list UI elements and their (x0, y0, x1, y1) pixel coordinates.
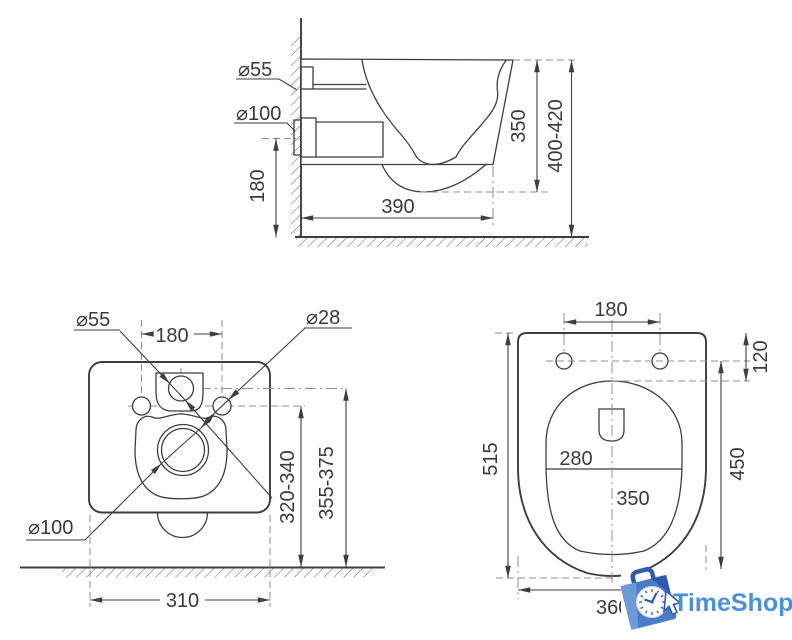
dim-side-body-height: 350 (508, 109, 530, 142)
dim-top-inner-length: 350 (616, 488, 649, 510)
label-rear-outlet-diameter: ⌀100 (28, 517, 73, 539)
toilet-side-outline (301, 59, 513, 165)
wall-hatch (291, 36, 301, 237)
dim-side-outlet-height: 180 (247, 169, 269, 202)
rear-bottom-bump (158, 513, 208, 538)
dim-top-bolt-spacing: 180 (594, 299, 627, 321)
dim-top-length: 515 (480, 442, 502, 475)
inlet-housing-arch (156, 373, 203, 411)
dim-side-depth: 390 (381, 196, 414, 218)
dim-rear-inlet-height: 355-375 (316, 446, 338, 519)
bowl-back-outline (135, 414, 227, 499)
alarm-clock-icon (637, 587, 668, 618)
label-side-inlet-diameter: ⌀55 (238, 59, 272, 81)
bowl-underside-curve (382, 165, 486, 193)
floor-hatch-rear (62, 569, 372, 578)
label-rear-bolt-diameter: ⌀28 (306, 307, 340, 329)
rear-view: 180 320-340 355-375 310 ⌀55 ⌀28 ⌀100 (20, 307, 385, 612)
side-view: 180 390 350 400-420 ⌀55 ⌀100 (234, 18, 589, 247)
label-side-outlet-diameter: ⌀100 (236, 103, 281, 125)
dim-rear-bolt-spacing: 180 (155, 325, 188, 347)
logo-brand-text: TimeShop (673, 589, 792, 617)
floor-hatch-side (296, 238, 588, 247)
label-rear-inlet-diameter: ⌀55 (76, 309, 110, 331)
timeshop-logo: TimeShop (618, 565, 792, 630)
drawing-canvas: 180 390 350 400-420 ⌀55 ⌀100 (0, 0, 792, 640)
mounting-hole-left (133, 397, 151, 415)
dim-rear-width: 310 (166, 590, 199, 612)
dim-side-install-height: 400-420 (545, 99, 567, 172)
dim-rear-bolt-height: 320-340 (277, 450, 299, 523)
technical-drawing: 180 390 350 400-420 ⌀55 ⌀100 (0, 0, 792, 640)
dim-top-bolt-offset: 120 (750, 340, 772, 373)
dim-top-bowl-length: 450 (727, 447, 749, 480)
dim-top-inner-width: 280 (559, 448, 592, 470)
